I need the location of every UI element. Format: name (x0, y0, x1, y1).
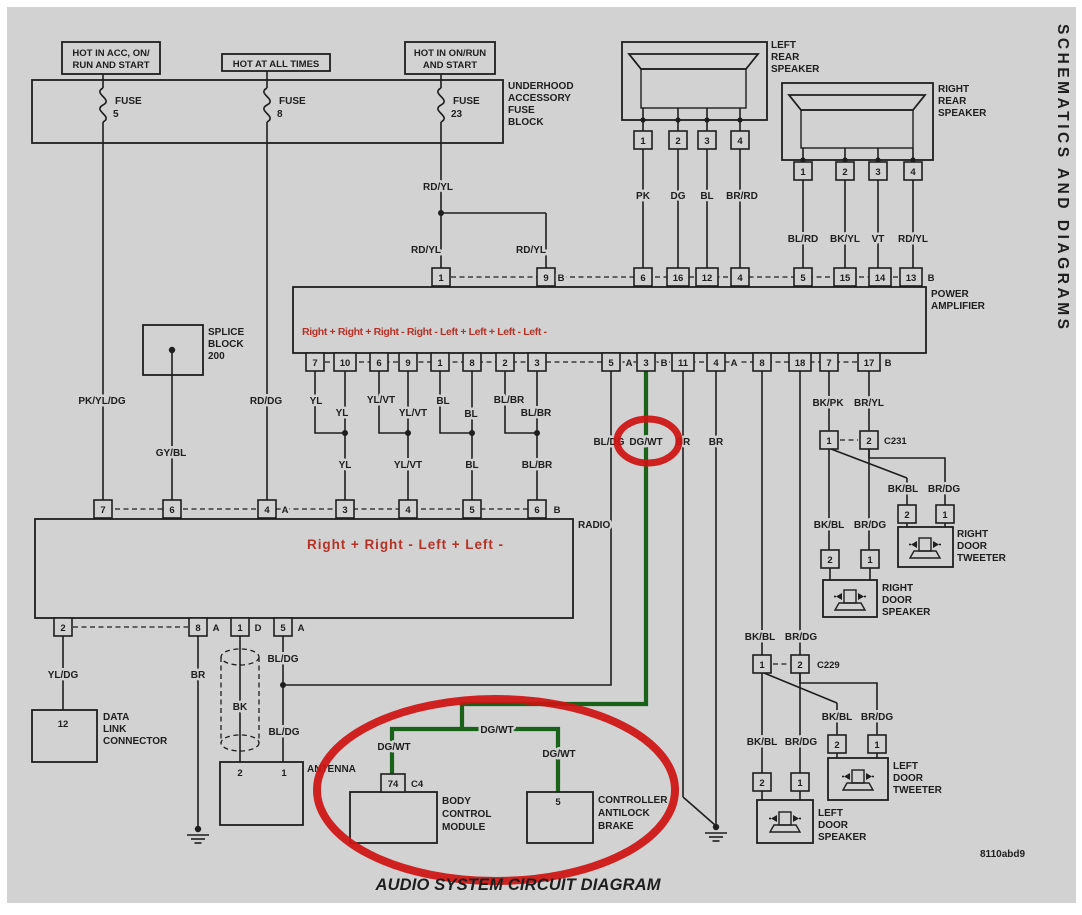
svg-text:PK: PK (636, 191, 651, 202)
svg-text:2: 2 (675, 136, 680, 147)
svg-text:BL: BL (465, 460, 478, 471)
svg-text:4: 4 (737, 136, 743, 147)
svg-text:DATA: DATA (103, 712, 129, 723)
svg-text:BR/DG: BR/DG (785, 632, 817, 643)
svg-text:15: 15 (840, 273, 851, 284)
svg-text:DOOR: DOOR (882, 595, 913, 606)
radio-conn-a3-label: A (298, 623, 305, 634)
svg-text:FUSE: FUSE (279, 96, 306, 107)
svg-text:6: 6 (534, 505, 539, 516)
svg-text:2: 2 (842, 167, 847, 178)
svg-text:BR/DG: BR/DG (854, 520, 886, 531)
svg-text:5: 5 (800, 273, 806, 284)
svg-text:BR/DG: BR/DG (785, 737, 817, 748)
amp-conn-a-label: A (626, 358, 633, 369)
svg-text:3: 3 (875, 167, 880, 178)
svg-text:ANTENNA: ANTENNA (307, 764, 356, 775)
svg-text:3: 3 (643, 358, 648, 369)
svg-text:DOOR: DOOR (893, 773, 924, 784)
svg-text:12: 12 (702, 273, 713, 284)
svg-text:2: 2 (866, 436, 871, 447)
radio-conn-b-label: B (554, 505, 561, 516)
svg-text:23: 23 (451, 109, 463, 120)
svg-text:BL: BL (464, 409, 477, 420)
svg-text:5: 5 (280, 623, 286, 634)
svg-text:HOT IN ACC, ON/: HOT IN ACC, ON/ (72, 48, 150, 59)
diagram-caption: AUDIO SYSTEM CIRCUIT DIAGRAM (375, 876, 662, 894)
svg-text:3: 3 (534, 358, 539, 369)
svg-text:BL/BR: BL/BR (522, 460, 553, 471)
svg-text:1: 1 (942, 510, 948, 521)
c229-label: C229 (817, 660, 840, 671)
svg-text:CONTROLLER: CONTROLLER (598, 795, 668, 806)
svg-text:AND START: AND START (423, 60, 477, 71)
svg-text:PK/YL/DG: PK/YL/DG (78, 396, 125, 407)
svg-text:1: 1 (438, 273, 444, 284)
svg-text:LEFT: LEFT (818, 808, 843, 819)
abs-pin-label: 5 (555, 797, 561, 808)
svg-text:2: 2 (60, 623, 65, 634)
svg-text:3: 3 (704, 136, 709, 147)
radio-conn-d-label: D (255, 623, 262, 634)
svg-text:UNDERHOOD: UNDERHOOD (508, 81, 574, 92)
svg-text:2: 2 (502, 358, 507, 369)
svg-text:DG: DG (671, 191, 686, 202)
amp-conn-a2-label: A (731, 358, 738, 369)
svg-text:3: 3 (342, 505, 347, 516)
svg-text:13: 13 (906, 273, 917, 284)
svg-text:LEFT: LEFT (771, 40, 796, 51)
svg-text:BL: BL (436, 396, 449, 407)
svg-text:LINK: LINK (103, 724, 127, 735)
svg-text:1: 1 (874, 740, 880, 751)
svg-text:BR: BR (191, 670, 206, 681)
svg-text:4: 4 (264, 505, 270, 516)
svg-text:74: 74 (388, 779, 399, 790)
svg-text:POWER: POWER (931, 289, 970, 300)
svg-text:17: 17 (864, 358, 875, 369)
svg-text:8: 8 (277, 109, 283, 120)
svg-text:1: 1 (867, 555, 873, 566)
svg-text:SPEAKER: SPEAKER (818, 832, 867, 843)
svg-text:1: 1 (640, 136, 646, 147)
radio-channel-labels: Right + Right - Left + Left - (307, 537, 503, 552)
svg-text:FUSE: FUSE (508, 105, 535, 116)
svg-text:2: 2 (759, 778, 764, 789)
svg-text:BK/YL: BK/YL (830, 234, 860, 245)
svg-text:BK/BL: BK/BL (814, 520, 845, 531)
svg-text:8: 8 (195, 623, 200, 634)
svg-text:4: 4 (910, 167, 916, 178)
splice-dot (169, 347, 175, 353)
svg-text:YL/DG: YL/DG (48, 670, 79, 681)
svg-text:DG/WT: DG/WT (480, 725, 513, 736)
svg-text:2: 2 (834, 740, 839, 751)
radio-conn-a-label: A (282, 505, 289, 516)
svg-text:7: 7 (100, 505, 105, 516)
svg-text:BLOCK: BLOCK (208, 339, 244, 350)
svg-text:RUN AND START: RUN AND START (72, 60, 149, 71)
svg-text:YL/VT: YL/VT (394, 460, 422, 471)
svg-text:16: 16 (673, 273, 684, 284)
svg-text:REAR: REAR (938, 96, 967, 107)
svg-text:REAR: REAR (771, 52, 800, 63)
svg-text:DG/WT: DG/WT (542, 749, 575, 760)
svg-text:14: 14 (875, 273, 886, 284)
svg-text:YL: YL (336, 408, 349, 419)
diagram-code: 8110abd9 (980, 849, 1025, 860)
svg-text:MODULE: MODULE (442, 822, 486, 833)
amp-conn-b-label: B (558, 273, 565, 284)
svg-text:YL/VT: YL/VT (399, 408, 427, 419)
amp-conn-b4-label: B (885, 358, 892, 369)
svg-text:11: 11 (678, 358, 689, 369)
svg-text:18: 18 (795, 358, 806, 369)
svg-text:RADIO: RADIO (578, 520, 610, 531)
svg-text:BR/DG: BR/DG (928, 484, 960, 495)
svg-text:LEFT: LEFT (893, 761, 918, 772)
svg-text:BODY: BODY (442, 796, 471, 807)
bcm-connector-label: C4 (411, 779, 424, 790)
svg-text:8: 8 (759, 358, 764, 369)
svg-text:GY/BL: GY/BL (156, 448, 187, 459)
svg-text:4: 4 (737, 273, 743, 284)
svg-text:1: 1 (237, 623, 243, 634)
svg-text:6: 6 (376, 358, 381, 369)
svg-text:SPEAKER: SPEAKER (938, 108, 987, 119)
schematic-page: 1 2 3 4 1 2 3 4 1 9 B 6 16 12 4 5 15 14 … (0, 0, 1082, 910)
svg-text:SPEAKER: SPEAKER (882, 607, 931, 618)
svg-text:CONTROL: CONTROL (442, 809, 491, 820)
svg-text:5: 5 (113, 109, 119, 120)
svg-text:YL: YL (339, 460, 352, 471)
svg-text:BL/DG: BL/DG (268, 727, 299, 738)
svg-text:200: 200 (208, 351, 225, 362)
sidebar-vertical-title: SCHEMATICS AND DIAGRAMS (1054, 24, 1071, 329)
svg-text:RIGHT: RIGHT (882, 583, 913, 594)
svg-text:2: 2 (904, 510, 909, 521)
svg-text:BK/BL: BK/BL (822, 712, 853, 723)
svg-text:CONNECTOR: CONNECTOR (103, 736, 168, 747)
svg-text:HOT AT ALL TIMES: HOT AT ALL TIMES (233, 59, 320, 70)
svg-text:RD/YL: RD/YL (516, 245, 546, 256)
svg-text:HOT IN ON/RUN: HOT IN ON/RUN (414, 48, 486, 59)
svg-text:SPEAKER: SPEAKER (771, 64, 820, 75)
svg-text:6: 6 (640, 273, 645, 284)
svg-text:YL/VT: YL/VT (367, 395, 395, 406)
amp-conn-b3-label: B (661, 358, 668, 369)
svg-text:1: 1 (826, 436, 832, 447)
svg-text:BK/BL: BK/BL (888, 484, 919, 495)
svg-text:9: 9 (543, 273, 548, 284)
svg-text:BK/BL: BK/BL (747, 737, 778, 748)
svg-text:DG/WT: DG/WT (377, 742, 410, 753)
svg-text:DG/WT: DG/WT (629, 437, 662, 448)
amp-conn-b2-label: B (928, 273, 935, 284)
c231-label: C231 (884, 436, 907, 447)
radio-conn-a2-label: A (213, 623, 220, 634)
svg-text:BK/PK: BK/PK (812, 398, 844, 409)
svg-text:1: 1 (797, 778, 803, 789)
svg-text:FUSE: FUSE (453, 96, 480, 107)
svg-text:2: 2 (827, 555, 832, 566)
svg-text:5: 5 (469, 505, 475, 516)
svg-text:BR/YL: BR/YL (854, 398, 884, 409)
svg-text:RD/YL: RD/YL (898, 234, 928, 245)
svg-text:9: 9 (405, 358, 410, 369)
svg-text:DOOR: DOOR (818, 820, 849, 831)
svg-text:10: 10 (340, 358, 351, 369)
svg-text:BL/BR: BL/BR (521, 408, 552, 419)
svg-text:4: 4 (713, 358, 719, 369)
svg-text:ANTILOCK: ANTILOCK (598, 808, 650, 819)
wiring-diagram-canvas: 1 2 3 4 1 2 3 4 1 9 B 6 16 12 4 5 15 14 … (0, 0, 1082, 910)
svg-text:BL/BR: BL/BR (494, 395, 525, 406)
svg-text:BK/BL: BK/BL (745, 632, 776, 643)
svg-text:VT: VT (872, 234, 885, 245)
svg-text:8: 8 (469, 358, 474, 369)
svg-text:BL/DG: BL/DG (267, 654, 298, 665)
svg-text:DOOR: DOOR (957, 541, 988, 552)
antenna-pin1-label: 1 (281, 768, 287, 779)
antenna-pin2-label: 2 (237, 768, 242, 779)
svg-text:FUSE: FUSE (115, 96, 142, 107)
svg-text:RIGHT: RIGHT (957, 529, 988, 540)
svg-text:RD/DG: RD/DG (250, 396, 282, 407)
svg-text:5: 5 (608, 358, 614, 369)
svg-text:7: 7 (312, 358, 317, 369)
svg-text:1: 1 (437, 358, 443, 369)
svg-text:2: 2 (797, 660, 802, 671)
dlc-pin-label: 12 (58, 719, 69, 730)
svg-text:BL: BL (700, 191, 713, 202)
svg-text:RD/YL: RD/YL (423, 182, 453, 193)
svg-text:4: 4 (405, 505, 411, 516)
svg-text:RIGHT: RIGHT (938, 84, 969, 95)
svg-text:SPLICE: SPLICE (208, 327, 244, 338)
svg-text:BR/RD: BR/RD (726, 191, 758, 202)
svg-text:BL/RD: BL/RD (788, 234, 819, 245)
svg-text:TWEETER: TWEETER (893, 785, 943, 796)
svg-text:AMPLIFIER: AMPLIFIER (931, 301, 986, 312)
svg-text:YL: YL (310, 396, 323, 407)
svg-text:BK: BK (233, 702, 248, 713)
svg-text:TWEETER: TWEETER (957, 553, 1007, 564)
svg-text:ACCESSORY: ACCESSORY (508, 93, 571, 104)
svg-text:BLOCK: BLOCK (508, 117, 544, 128)
svg-text:BR: BR (709, 437, 724, 448)
svg-text:1: 1 (800, 167, 806, 178)
svg-text:1: 1 (759, 660, 765, 671)
svg-text:BRAKE: BRAKE (598, 821, 634, 832)
svg-text:BR/DG: BR/DG (861, 712, 893, 723)
svg-text:RD/YL: RD/YL (411, 245, 441, 256)
svg-text:6: 6 (169, 505, 174, 516)
svg-text:7: 7 (826, 358, 831, 369)
amp-channel-labels: Right + Right + Right - Right - Left + L… (302, 326, 548, 338)
